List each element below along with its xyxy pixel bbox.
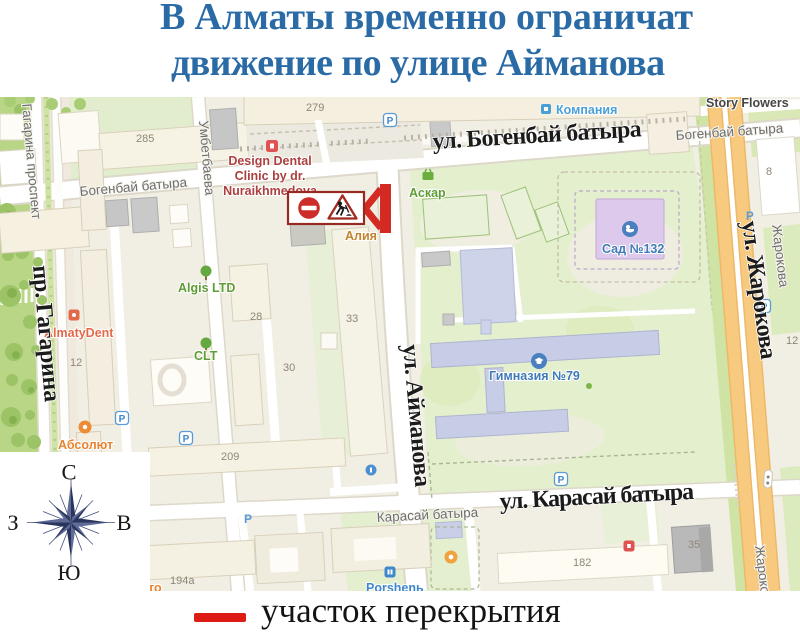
svg-text:Algis LTD: Algis LTD xyxy=(178,281,235,295)
svg-text:Р: Р xyxy=(244,512,252,526)
svg-text:Р: Р xyxy=(387,116,394,127)
svg-text:Гимназия №79: Гимназия №79 xyxy=(489,369,580,383)
svg-text:8: 8 xyxy=(766,166,772,178)
svg-text:209: 209 xyxy=(221,451,239,463)
svg-text:Р: Р xyxy=(119,414,126,425)
svg-text:Story Flowers: Story Flowers xyxy=(706,97,789,110)
svg-text:С: С xyxy=(61,460,76,485)
svg-text:33: 33 xyxy=(346,313,358,325)
svg-text:194а: 194а xyxy=(170,575,195,587)
svg-text:Design Dental: Design Dental xyxy=(228,154,311,168)
svg-text:З: З xyxy=(7,510,18,535)
svg-text:Ю: Ю xyxy=(57,560,80,585)
svg-text:182: 182 xyxy=(573,557,591,569)
svg-text:В: В xyxy=(116,510,131,535)
svg-text:Алия: Алия xyxy=(345,229,377,243)
svg-text:Р: Р xyxy=(183,434,190,445)
svg-text:CLT: CLT xyxy=(194,349,218,363)
svg-text:285: 285 xyxy=(136,133,154,145)
svg-text:279: 279 xyxy=(306,102,324,114)
svg-text:12: 12 xyxy=(70,357,82,369)
svg-text:то: то xyxy=(148,581,162,591)
svg-text:12: 12 xyxy=(786,335,798,347)
svg-text:Абсолют: Абсолют xyxy=(58,438,113,452)
svg-text:Аскар: Аскар xyxy=(409,186,446,200)
svg-text:Сад №132: Сад №132 xyxy=(602,242,664,256)
svg-text:30: 30 xyxy=(283,362,295,374)
svg-text:Р: Р xyxy=(558,475,565,486)
svg-text:Porshenь: Porshenь xyxy=(366,581,424,591)
svg-text:Clinic by dr.: Clinic by dr. xyxy=(235,169,306,183)
svg-text:28: 28 xyxy=(250,311,262,323)
svg-text:Компания: Компания xyxy=(556,103,617,117)
svg-text:35: 35 xyxy=(688,539,700,551)
